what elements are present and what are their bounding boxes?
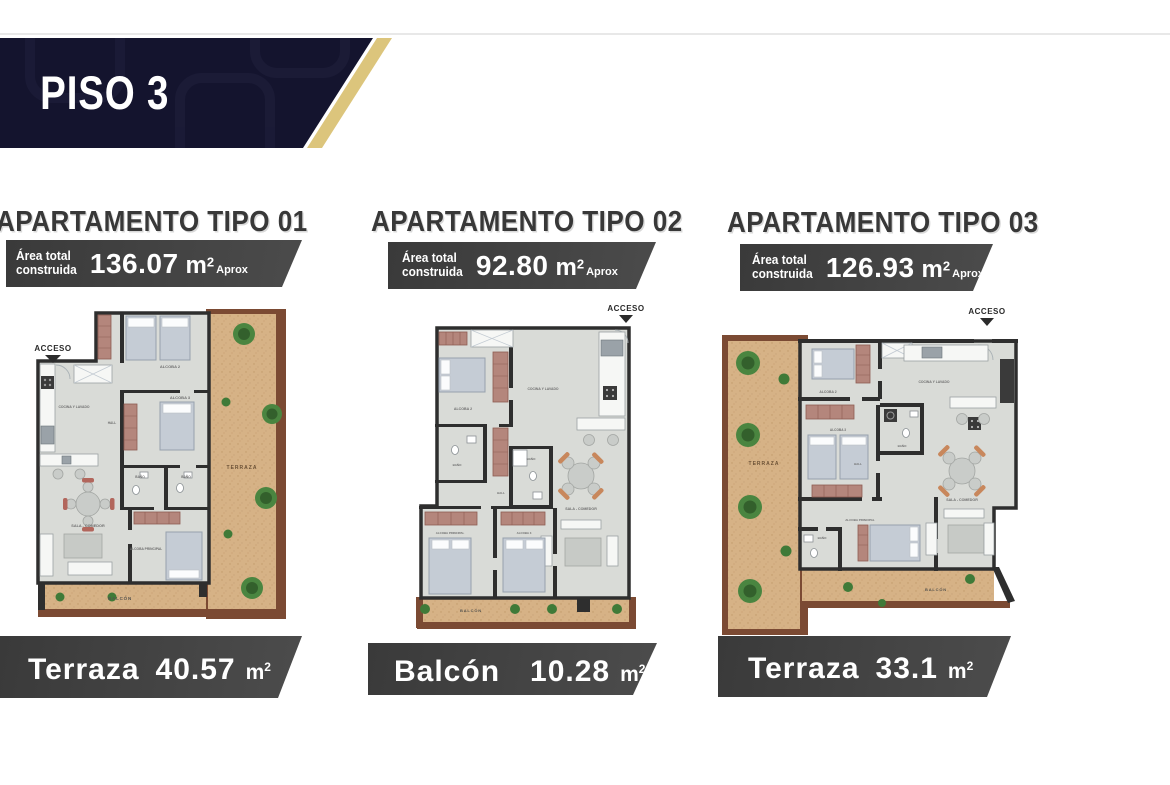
top-border-line <box>0 33 1170 35</box>
outdoor-badge-1: Terraza40.57m2 <box>0 636 302 698</box>
tree <box>736 351 760 375</box>
room-label: COCINA Y LAVADO <box>918 380 949 384</box>
closet <box>439 332 467 345</box>
tree <box>738 579 762 603</box>
area-value: 126.93m2Aprox <box>826 252 984 284</box>
room-label: ALCOBA PRINCIPAL <box>845 518 875 522</box>
outdoor-label: Balcón <box>394 655 500 688</box>
closet <box>134 512 180 524</box>
floor-title: PISO 3 <box>40 67 169 119</box>
closet <box>806 405 854 419</box>
room-label: BAÑO <box>181 474 191 479</box>
room-label: HALL <box>108 421 117 425</box>
terraza-area: TERRAZA <box>206 309 286 619</box>
bush <box>878 599 886 607</box>
terraza-area: TERRAZA <box>722 335 808 635</box>
tree <box>241 577 263 599</box>
apartment-1-title: APARTAMENTO TIPO 01 <box>0 206 308 239</box>
sofa <box>40 534 112 576</box>
unit-m: m <box>246 661 265 684</box>
bush <box>222 398 231 407</box>
area-unit: m <box>186 252 207 279</box>
page: PISO 3 APARTAMENTO TIPO 01 APARTAMENTO T… <box>0 0 1170 785</box>
room-label: ALCOBA 2 <box>454 407 472 411</box>
balcon-label: BALCÓN <box>460 608 482 613</box>
terraza-label: TERRAZA <box>749 461 780 467</box>
entry-closet <box>471 330 513 347</box>
tree <box>738 495 762 519</box>
area-label-line2: construida <box>752 268 813 282</box>
bed <box>812 349 854 379</box>
bush <box>547 604 557 614</box>
apartment-3-title: APARTAMENTO TIPO 03 <box>727 207 1039 240</box>
bed <box>126 316 156 360</box>
area-label-line2: construida <box>402 266 463 280</box>
area-number: 92.80 <box>476 250 549 281</box>
closet <box>98 315 111 359</box>
area-label: Área total construida <box>752 254 813 282</box>
room-label: BAÑO <box>135 474 145 479</box>
room-label: SALA - COMEDOR <box>946 498 978 502</box>
area-value: 136.07m2Aprox <box>90 248 248 280</box>
bed <box>840 435 868 479</box>
room-label: ALCOBA 2 <box>160 364 181 369</box>
area-unit: m <box>922 256 943 283</box>
area-label: Área total construida <box>16 250 77 278</box>
room-label: ALCOBA PRINCIPAL <box>436 531 465 535</box>
bush <box>224 530 233 539</box>
apartment-2-title: APARTAMENTO TIPO 02 <box>371 206 683 239</box>
unit-m: m <box>948 660 967 683</box>
room-label: ALCOBA PRINCIPAL <box>130 547 162 551</box>
bed <box>439 358 485 392</box>
bed <box>160 402 194 450</box>
outdoor-label: Terraza <box>28 653 140 686</box>
outdoor-unit: m2 <box>948 660 973 683</box>
entry-closet <box>74 365 112 383</box>
outdoor-label: Terraza <box>748 652 860 685</box>
closet <box>812 485 862 497</box>
balcon-area: BALCÓN <box>800 567 1015 608</box>
area-number: 136.07 <box>90 248 179 279</box>
bush <box>781 546 792 557</box>
bed <box>160 316 190 360</box>
room-label: ALCOBA 3 <box>170 395 191 400</box>
outdoor-unit: m2 <box>246 661 271 684</box>
area-unit: m <box>555 254 576 281</box>
bush <box>56 593 65 602</box>
bush <box>843 582 853 592</box>
bed <box>429 538 471 594</box>
bush <box>779 374 790 385</box>
balcon-label: BALCÓN <box>108 594 132 601</box>
aprox-label: Aprox <box>952 268 984 280</box>
floor-plan-3: TERRAZA BALCÓN <box>722 301 1022 635</box>
tree <box>736 423 760 447</box>
acceso-arrow-icon <box>619 315 633 323</box>
area-label-line2: construida <box>16 264 77 278</box>
room-label: SALA - COMEDOR <box>565 507 597 511</box>
bush <box>420 604 430 614</box>
outdoor-badge-2: Balcón10.28m2 <box>368 643 657 695</box>
closet <box>425 512 477 525</box>
area-number: 126.93 <box>826 252 915 283</box>
acceso-arrow-icon <box>980 318 994 326</box>
area-label: Área total construida <box>402 252 463 280</box>
unit-exp: 2 <box>967 659 974 673</box>
unit-m: m <box>620 663 639 686</box>
outdoor-value: 10.28 <box>530 655 610 688</box>
room-label: SALA - COMEDOR <box>71 524 105 528</box>
outdoor-unit: m2 <box>620 663 645 686</box>
outdoor-value: 33.1 <box>876 652 938 685</box>
area-unit-exp: 2 <box>577 256 584 271</box>
aprox-label: Aprox <box>586 266 618 278</box>
floor-plan-1: TERRAZA BALCÓN <box>28 306 306 632</box>
closet <box>858 525 868 561</box>
closet <box>856 345 870 383</box>
bed <box>503 538 545 592</box>
outdoor-badge-3: Terraza33.1m2 <box>718 636 1011 697</box>
room-label: BAÑO <box>818 535 827 540</box>
acceso-label: ACCESO <box>607 304 644 313</box>
bed <box>808 435 836 479</box>
room-label: COCINA Y LAVADO <box>58 405 89 409</box>
tree <box>255 487 277 509</box>
area-label-line1: Área total <box>16 250 77 264</box>
bed <box>870 525 920 561</box>
bush <box>510 604 520 614</box>
area-unit-exp: 2 <box>207 254 214 269</box>
room-label: ALCOBA 3 <box>830 428 846 432</box>
floor-plan-2: BALCÓN ACCESO <box>383 298 657 632</box>
closet <box>493 428 508 476</box>
area-value: 92.80m2Aprox <box>476 250 618 282</box>
terraza-label: TERRAZA <box>227 465 258 471</box>
room-label: BAÑO <box>898 443 907 448</box>
bush <box>965 574 975 584</box>
unit-exp: 2 <box>264 660 271 674</box>
tree <box>233 323 255 345</box>
closet <box>501 512 545 525</box>
room-label: ALCOBA 2 <box>819 390 836 394</box>
area-label-line1: Área total <box>752 254 813 268</box>
floor-banner: PISO 3 <box>0 38 394 148</box>
tree <box>262 404 282 424</box>
area-label-line1: Área total <box>402 252 463 266</box>
balcon-label: BALCÓN <box>925 587 947 592</box>
room-label: HALL <box>497 491 505 495</box>
aprox-label: Aprox <box>216 264 248 276</box>
unit-exp: 2 <box>639 662 646 676</box>
area-badge-3: Área total construida 126.93m2Aprox <box>740 244 993 291</box>
area-badge-1: Área total construida 136.07m2Aprox <box>6 240 302 287</box>
room-label: BAÑO <box>453 462 462 467</box>
area-unit-exp: 2 <box>943 258 950 273</box>
room-label: HALL <box>854 462 862 466</box>
closet <box>124 404 137 450</box>
acceso-label: ACCESO <box>968 307 1005 316</box>
outdoor-value: 40.57 <box>156 653 236 686</box>
room-label: BAÑO <box>527 456 536 461</box>
closet <box>493 352 508 402</box>
room-label: ALCOBA 3 <box>517 531 532 535</box>
acceso-label: ACCESO <box>34 344 71 353</box>
room-label: COCINA Y LAVADO <box>527 387 558 391</box>
bush <box>612 604 622 614</box>
bed <box>166 532 202 580</box>
area-badge-2: Área total construida 92.80m2Aprox <box>388 242 656 289</box>
